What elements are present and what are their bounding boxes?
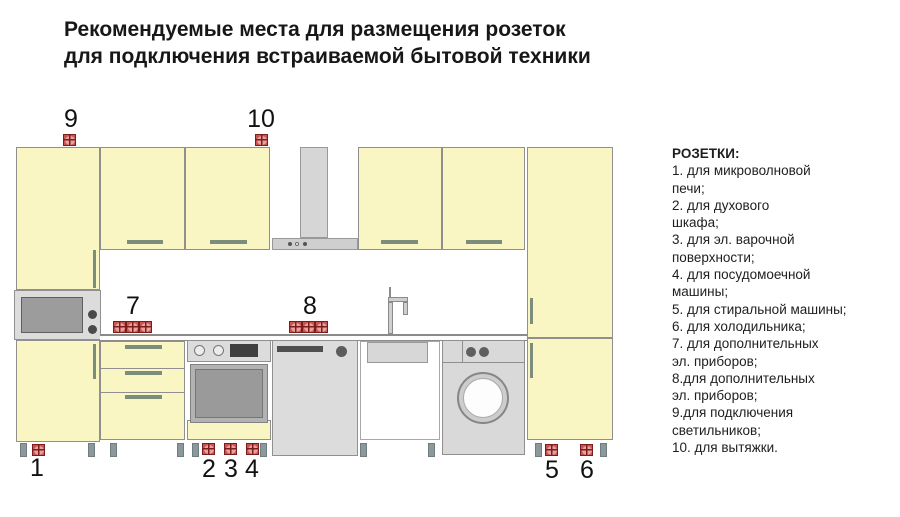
kitchen-elevation: 9 10 7 8 1 2 3 4 5 6	[0, 0, 660, 517]
outlet-number-4: 4	[237, 456, 267, 482]
outlet-marker-10	[255, 134, 268, 146]
fridge-lower-door	[527, 338, 613, 440]
hood-button-icon	[288, 242, 292, 246]
outlet-number-6: 6	[572, 457, 602, 483]
legend-line: 9.для подключения	[672, 404, 887, 421]
pantry-lower-door	[16, 340, 100, 442]
dishwasher-vent-slot	[277, 346, 323, 352]
dishwasher	[272, 340, 358, 456]
drawer-divider	[100, 368, 185, 369]
legend-line: 3. для эл. варочной	[672, 231, 887, 248]
outlet-number-1: 1	[22, 455, 52, 481]
drawer-handle	[125, 345, 162, 349]
cabinet-handle	[210, 240, 247, 244]
fridge-lower-door-handle	[530, 343, 533, 378]
cabinet-leg	[88, 443, 95, 457]
outlet-number-8: 8	[295, 293, 325, 319]
page: Рекомендуемые места для размещения розет…	[0, 0, 900, 517]
fridge-upper-door-handle	[530, 298, 533, 324]
outlet-marker-7	[113, 321, 152, 333]
hood-button-icon	[303, 242, 307, 246]
washer-panel-section-line	[462, 340, 463, 362]
outlet-number-7: 7	[118, 293, 148, 319]
pantry-upper-door-handle	[93, 250, 96, 288]
socket-icon	[289, 321, 302, 333]
legend-line: 1. для микроволновой	[672, 162, 887, 179]
outlet-marker-5	[545, 444, 558, 456]
wall-cabinet	[442, 147, 525, 250]
outlet-number-9: 9	[56, 106, 86, 132]
fridge-upper-door	[527, 147, 613, 338]
washer-knob	[466, 347, 476, 357]
legend-line: 7. для дополнительных	[672, 335, 887, 352]
legend-line: 5. для стиральной машины;	[672, 301, 887, 318]
legend-line: поверхности;	[672, 249, 887, 266]
faucet-spout	[403, 302, 408, 315]
legend-line: эл. приборов;	[672, 387, 887, 404]
socket-icon	[202, 443, 215, 455]
faucet-stem	[388, 302, 393, 334]
cabinet-leg	[600, 443, 607, 457]
legend-line: 10. для вытяжки.	[672, 439, 887, 456]
outlet-number-10: 10	[241, 106, 281, 132]
socket-icon	[224, 443, 237, 455]
washer-knob	[479, 347, 489, 357]
washer-drum-glass	[463, 378, 503, 418]
cabinet-handle	[466, 240, 502, 244]
oven-display	[230, 344, 258, 357]
outlet-marker-8	[289, 321, 328, 333]
drawer-handle	[125, 371, 162, 375]
legend-line: 8.для дополнительных	[672, 370, 887, 387]
hood-button-icon	[295, 242, 299, 246]
washer-panel-divider	[442, 362, 525, 363]
cabinet-leg	[360, 443, 367, 457]
outlet-number-5: 5	[537, 457, 567, 483]
legend-line: 6. для холодильника;	[672, 318, 887, 335]
socket-icon	[580, 444, 593, 456]
oven-plinth	[187, 420, 271, 440]
dishwasher-button	[336, 346, 347, 357]
drawer-handle	[125, 395, 162, 399]
cabinet-leg	[110, 443, 117, 457]
socket-icon	[113, 321, 126, 333]
legend-heading: РОЗЕТКИ:	[672, 145, 887, 162]
cabinet-leg	[428, 443, 435, 457]
wall-cabinet	[185, 147, 270, 250]
socket-icon	[545, 444, 558, 456]
sink-basin	[367, 342, 428, 363]
cabinet-leg	[535, 443, 542, 457]
outlet-marker-4	[246, 443, 259, 455]
cabinet-leg	[177, 443, 184, 457]
outlet-marker-2	[202, 443, 215, 455]
pantry-upper-door	[16, 147, 100, 290]
drawer-divider	[100, 392, 185, 393]
microwave-knob	[88, 325, 97, 334]
socket-icon	[255, 134, 268, 146]
cabinet-handle	[127, 240, 163, 244]
legend-line: эл. приборов;	[672, 353, 887, 370]
drawer-unit	[100, 341, 185, 440]
socket-icon	[126, 321, 139, 333]
microwave-knob	[88, 310, 97, 319]
pantry-lower-door-handle	[93, 344, 96, 379]
legend-line: машины;	[672, 283, 887, 300]
socket-icon	[302, 321, 315, 333]
legend: РОЗЕТКИ: 1. для микроволновой печи; 2. д…	[672, 145, 887, 456]
outlet-marker-3	[224, 443, 237, 455]
cooker-hood-chimney	[300, 147, 328, 238]
socket-icon	[63, 134, 76, 146]
outlet-marker-9	[63, 134, 76, 146]
cabinet-leg	[260, 443, 267, 457]
socket-icon	[315, 321, 328, 333]
oven-knob	[213, 345, 224, 356]
cooker-hood-body	[272, 238, 358, 250]
socket-icon	[246, 443, 259, 455]
cabinet-handle	[381, 240, 418, 244]
legend-line: печи;	[672, 180, 887, 197]
legend-line: 4. для посудомоечной	[672, 266, 887, 283]
wall-cabinet	[358, 147, 442, 250]
oven-knob	[194, 345, 205, 356]
oven-door-glass	[195, 369, 263, 418]
microwave-screen	[21, 297, 83, 333]
cabinet-leg	[192, 443, 199, 457]
legend-line: светильников;	[672, 422, 887, 439]
legend-line: шкафа;	[672, 214, 887, 231]
outlet-marker-6	[580, 444, 593, 456]
wall-cabinet	[100, 147, 185, 250]
legend-line: 2. для духового	[672, 197, 887, 214]
socket-icon	[139, 321, 152, 333]
